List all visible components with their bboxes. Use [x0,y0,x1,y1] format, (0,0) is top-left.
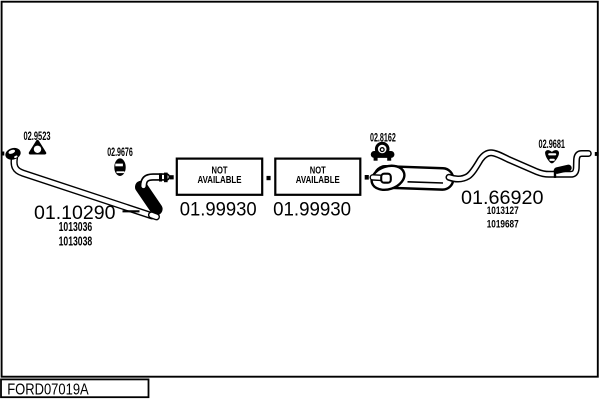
svg-text:01.99930: 01.99930 [180,199,257,221]
svg-text:1013036: 1013036 [59,220,93,234]
svg-text:FORD07019A: FORD07019A [7,382,89,399]
svg-text:02.9676: 02.9676 [107,147,133,159]
svg-text:AVAILABLE: AVAILABLE [296,175,340,186]
svg-text:1019687: 1019687 [487,219,519,231]
svg-text:1013127: 1013127 [487,205,519,217]
svg-text:1013038: 1013038 [59,235,93,249]
svg-text:01.99930: 01.99930 [273,199,351,221]
svg-text:02.9681: 02.9681 [539,139,566,151]
svg-text:AVAILABLE: AVAILABLE [198,175,242,186]
